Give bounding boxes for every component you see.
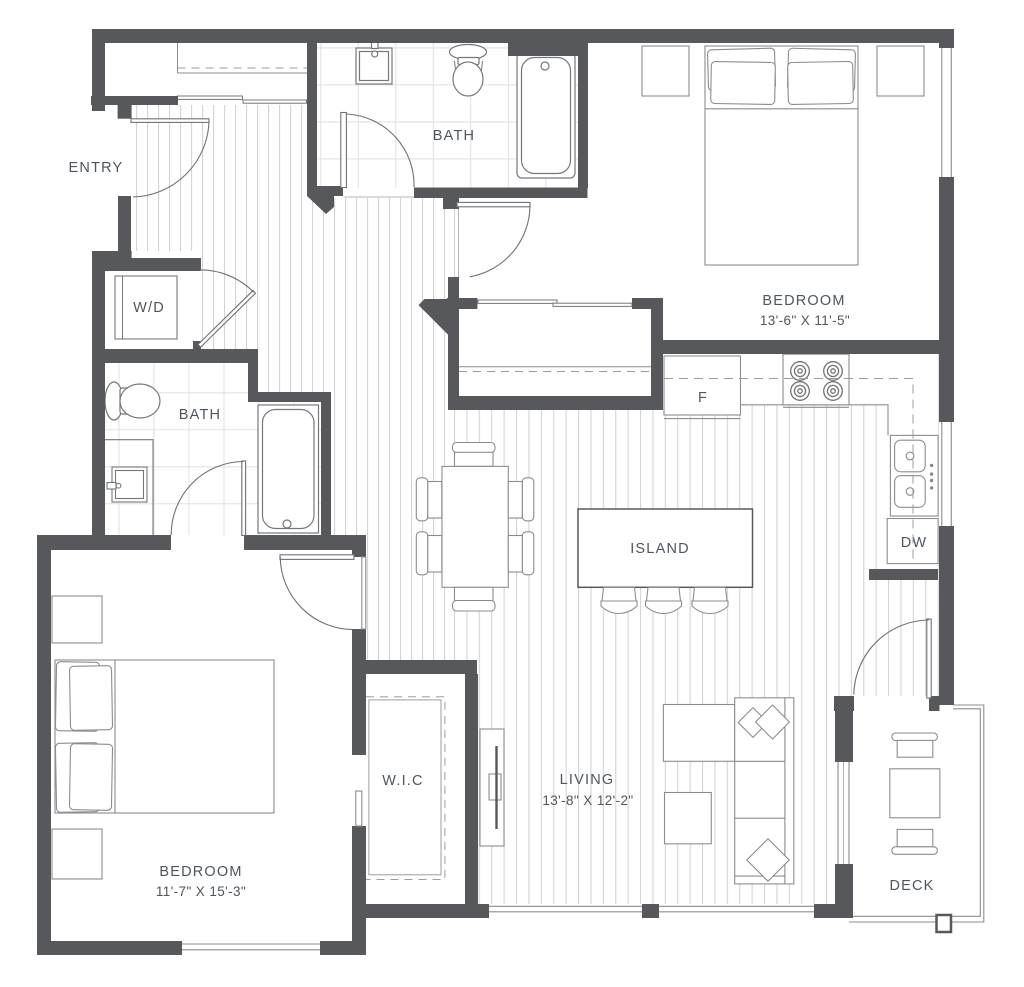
svg-text:11'-7" X 15'-3": 11'-7" X 15'-3"	[156, 884, 246, 899]
svg-text:DECK: DECK	[889, 878, 934, 894]
svg-text:LIVING: LIVING	[560, 772, 615, 788]
svg-text:13'-6" X 11'-5": 13'-6" X 11'-5"	[760, 313, 850, 328]
svg-text:ISLAND: ISLAND	[630, 541, 690, 557]
svg-text:F: F	[698, 390, 708, 406]
svg-text:BEDROOM: BEDROOM	[762, 293, 845, 309]
svg-text:BATH: BATH	[179, 407, 221, 423]
svg-text:W/D: W/D	[133, 300, 165, 316]
svg-text:BATH: BATH	[433, 128, 475, 144]
svg-text:13'-8" X 12'-2": 13'-8" X 12'-2"	[542, 793, 633, 808]
svg-text:ENTRY: ENTRY	[69, 160, 124, 176]
svg-text:BEDROOM: BEDROOM	[159, 864, 242, 880]
svg-text:W.I.C: W.I.C	[382, 773, 423, 789]
svg-text:DW: DW	[901, 535, 928, 551]
